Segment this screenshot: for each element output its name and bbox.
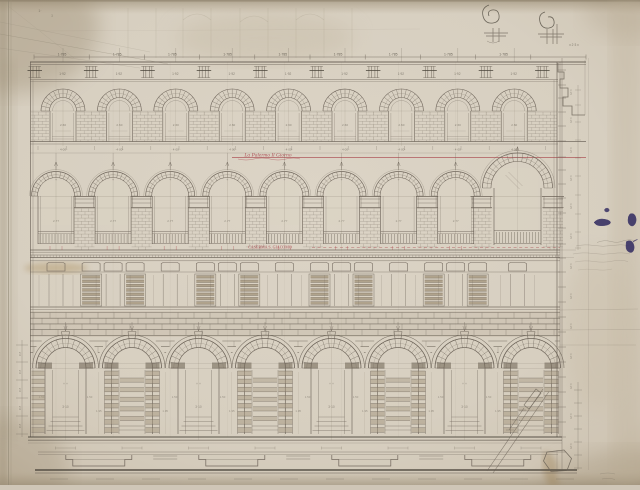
svg-text:4·35: 4·35	[569, 383, 573, 389]
svg-text:1·50: 1·50	[172, 395, 178, 399]
svg-text:· 4·00 ·: · 4·00 ·	[397, 148, 407, 152]
svg-text:1·92: 1·92	[229, 72, 236, 76]
svg-text:La Palermo Il Giorno: La Palermo Il Giorno	[243, 153, 291, 159]
svg-text:3·10: 3·10	[195, 405, 202, 409]
svg-text:1·95: 1·95	[495, 409, 501, 413]
svg-text:+ +: + +	[63, 382, 68, 386]
svg-text:1·95: 1·95	[96, 409, 102, 413]
svg-text:1·785: 1·785	[223, 53, 232, 57]
svg-text:3·10: 3·10	[62, 405, 69, 409]
svg-text:1·785: 1·785	[58, 53, 67, 57]
svg-text:· 4·00 ·: · 4·00 ·	[171, 148, 181, 152]
svg-text:1·50: 1·50	[353, 395, 359, 399]
svg-text:· 4·00 ·: · 4·00 ·	[284, 148, 294, 152]
svg-text:2·0: 2·0	[18, 424, 22, 429]
svg-text:4·35: 4·35	[569, 293, 573, 299]
svg-text:1·785: 1·785	[499, 53, 508, 57]
svg-text:2·0: 2·0	[18, 352, 22, 357]
svg-text:4·35: 4·35	[569, 263, 573, 269]
svg-text:2·60: 2·60	[398, 123, 404, 127]
svg-text:2·60: 2·60	[511, 123, 517, 127]
svg-text:4·35: 4·35	[569, 203, 573, 209]
svg-text:1·92: 1·92	[454, 72, 461, 76]
svg-text:4·35: 4·35	[569, 117, 573, 123]
svg-text:1·50: 1·50	[438, 395, 444, 399]
svg-text:4·35: 4·35	[569, 147, 573, 153]
svg-text:4·35: 4·35	[569, 353, 573, 359]
svg-text:2·0: 2·0	[18, 406, 22, 411]
svg-text:2·60: 2·60	[286, 123, 292, 127]
svg-text:4·35: 4·35	[569, 175, 573, 181]
svg-text:4·35: 4·35	[569, 89, 573, 95]
svg-text:· 4·00 ·: · 4·00 ·	[115, 148, 125, 152]
svg-text:4·35: 4·35	[569, 443, 573, 449]
svg-text:1·785: 1·785	[278, 53, 287, 57]
svg-text:1·95: 1·95	[229, 409, 235, 413]
svg-text:2·0: 2·0	[18, 370, 22, 375]
svg-text:CASERMA S. GIACOMO: CASERMA S. GIACOMO	[248, 245, 292, 250]
svg-text:2·60: 2·60	[173, 123, 179, 127]
svg-text:4·35: 4·35	[569, 323, 573, 329]
svg-text:2·60: 2·60	[116, 123, 122, 127]
svg-text:3·10: 3·10	[328, 405, 335, 409]
svg-text:1·92: 1·92	[285, 72, 292, 76]
svg-text:1·95: 1·95	[428, 409, 434, 413]
svg-text:3: 3	[51, 14, 53, 18]
svg-text:1·785: 1·785	[168, 53, 177, 57]
svg-text:2·0: 2·0	[18, 388, 22, 393]
svg-text:x 2·3 x: x 2·3 x	[569, 43, 579, 47]
svg-text:1·92: 1·92	[341, 72, 348, 76]
svg-text:3·10: 3·10	[461, 405, 468, 409]
svg-text:1·785: 1·785	[334, 53, 343, 57]
svg-text:1·50: 1·50	[305, 395, 311, 399]
svg-text:1·95: 1·95	[362, 409, 368, 413]
svg-text:1·: 1·	[38, 9, 41, 13]
svg-text:2·60: 2·60	[229, 123, 235, 127]
svg-text:2·60: 2·60	[342, 123, 348, 127]
svg-text:1·95: 1·95	[295, 409, 301, 413]
svg-text:1·50: 1·50	[87, 395, 93, 399]
svg-text:· 4·00 ·: · 4·00 ·	[227, 148, 237, 152]
svg-text:4·35: 4·35	[569, 233, 573, 239]
svg-text:+ +: + +	[196, 382, 201, 386]
svg-text:1·92: 1·92	[116, 72, 123, 76]
svg-text:4·35: 4·35	[569, 413, 573, 419]
svg-text:· 4·00 ·: · 4·00 ·	[58, 148, 68, 152]
svg-text:1·92: 1·92	[511, 72, 518, 76]
svg-text:+ +: + +	[329, 382, 334, 386]
svg-text:1·92: 1·92	[59, 72, 66, 76]
svg-text:1·50: 1·50	[220, 395, 226, 399]
svg-text:+ +: + +	[462, 382, 467, 386]
svg-text:1·92: 1·92	[172, 72, 179, 76]
svg-text:2·60: 2·60	[60, 123, 66, 127]
svg-text:1·785: 1·785	[444, 53, 453, 57]
svg-text:· 4·00 ·: · 4·00 ·	[453, 148, 463, 152]
svg-text:1·95: 1·95	[162, 409, 168, 413]
svg-text:1·785: 1·785	[389, 53, 398, 57]
svg-text:1·785: 1·785	[113, 53, 122, 57]
svg-text:1·50: 1·50	[486, 395, 492, 399]
